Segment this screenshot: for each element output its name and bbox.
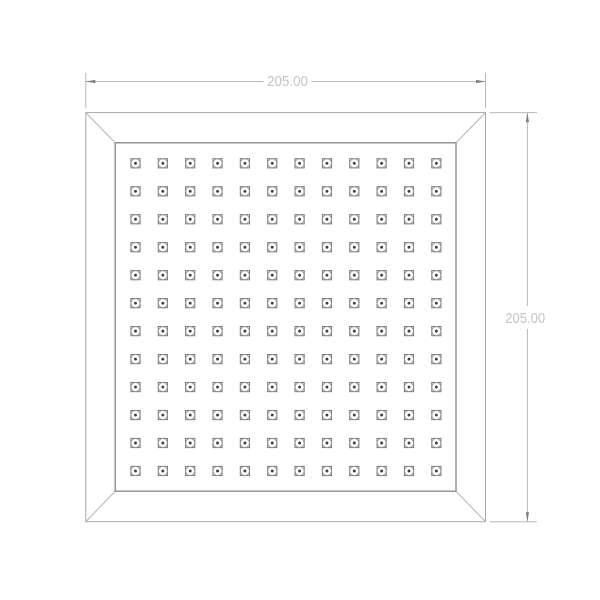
svg-text:205.00: 205.00: [505, 311, 545, 327]
svg-text:205.00: 205.00: [267, 74, 308, 90]
